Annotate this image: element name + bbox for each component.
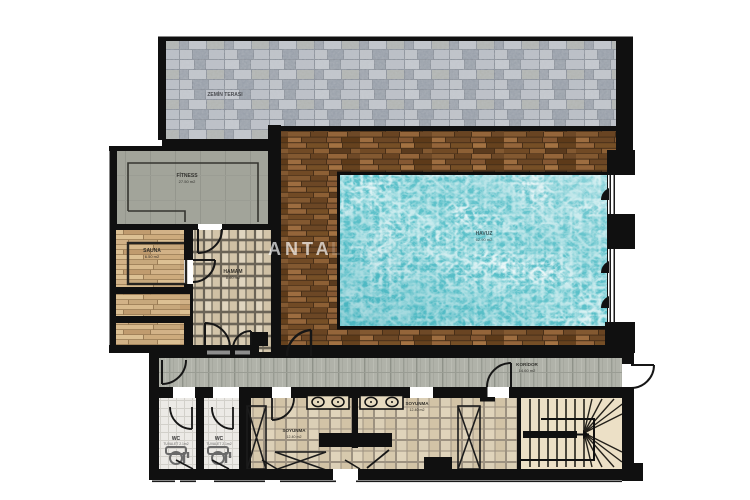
svg-text:TUVALET 2.1m2: TUVALET 2.1m2	[163, 442, 188, 446]
svg-text:TUVALET 2.1m2: TUVALET 2.1m2	[206, 442, 231, 446]
svg-text:FİTNESS: FİTNESS	[176, 172, 198, 179]
svg-text:14.60 m2: 14.60 m2	[519, 368, 536, 373]
svg-text:SOYUNMA: SOYUNMA	[282, 428, 306, 433]
svg-text:12.40 m2: 12.40 m2	[410, 408, 425, 412]
svg-text:ZEMİN TERASI: ZEMİN TERASI	[207, 91, 243, 98]
svg-text:LYA HOMES: LYA HOMES	[331, 239, 470, 259]
svg-text:6.50 m2: 6.50 m2	[145, 254, 160, 259]
svg-text:ANTA: ANTA	[268, 239, 333, 259]
svg-text:8.90 m2: 8.90 m2	[226, 275, 241, 280]
svg-text:12.40 m2: 12.40 m2	[287, 435, 302, 439]
svg-text:KORİDOR: KORİDOR	[516, 361, 538, 367]
svg-text:SOYUNMA: SOYUNMA	[405, 401, 429, 406]
svg-text:27.50 m2: 27.50 m2	[179, 179, 196, 184]
svg-text:62.90 m2: 62.90 m2	[476, 237, 493, 242]
